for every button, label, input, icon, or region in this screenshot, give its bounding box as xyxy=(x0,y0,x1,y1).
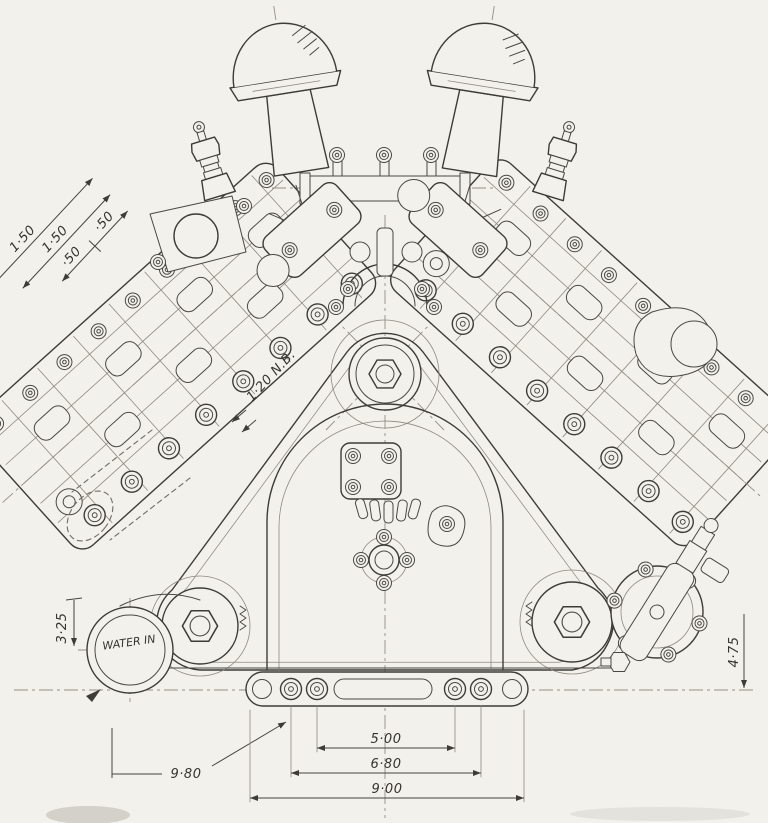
dim-label: 9·80 xyxy=(171,767,202,782)
dim-label: 3·25 xyxy=(55,613,70,644)
dim-label: 5·00 xyxy=(371,732,402,747)
tensioner-bracket xyxy=(428,506,465,546)
dim-label: 9·00 xyxy=(372,782,403,797)
mounting-bar xyxy=(246,672,528,706)
dim-label: 4·75 xyxy=(727,637,742,668)
front-cover-plate xyxy=(341,443,401,499)
idler-sprocket-top xyxy=(349,338,421,410)
v8-engine-front-elevation: WATER IN 1·50 1·50 xyxy=(0,0,768,823)
dim-label: 6·80 xyxy=(371,757,402,772)
scan-smudge xyxy=(570,807,750,821)
engineering-drawing-page: WATER IN 1·50 1·50 xyxy=(0,0,768,823)
